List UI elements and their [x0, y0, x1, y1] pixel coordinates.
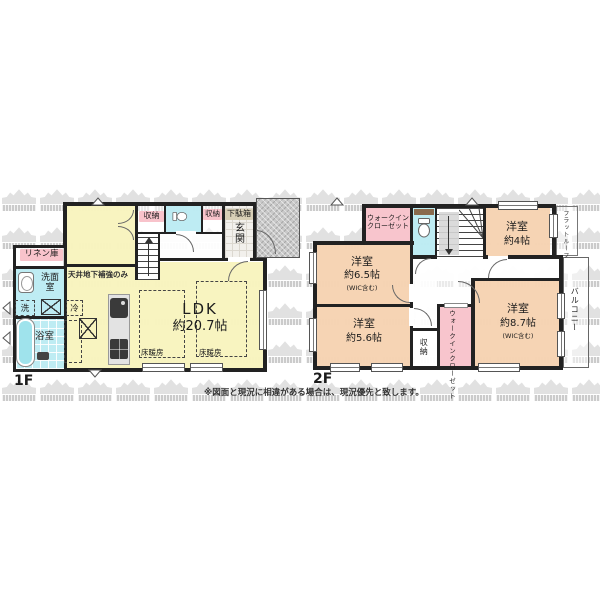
- watermark-logo: [496, 378, 530, 401]
- watermark-logo: [154, 378, 188, 401]
- window: [190, 363, 223, 372]
- wall: [164, 206, 166, 232]
- entrance-label: 玄関: [232, 222, 244, 252]
- washroom-label: 洗面室: [37, 273, 63, 294]
- room4-size: 約4帖: [486, 236, 548, 248]
- balcony-label: バルコニー: [570, 287, 579, 339]
- vent-marker: [2, 331, 11, 345]
- ceiling-note-label: 天井地下補強のみ: [68, 271, 128, 280]
- wall: [413, 328, 437, 331]
- inspection-hatch: [41, 299, 61, 315]
- linen-closet-label: リネン庫: [20, 249, 63, 261]
- room65-name: 洋室: [330, 256, 394, 269]
- watermark-logo: [534, 378, 568, 401]
- floorplan-image: 洗 冷 リネン庫 洗面室 浴室 収納 収納 下駄箱 玄関 天井地下補強のみ LD…: [0, 0, 600, 600]
- wall: [471, 278, 563, 281]
- watermark-logo: [572, 378, 600, 401]
- ldk-name-label: LDK: [168, 301, 232, 318]
- floor1-label: 1F: [14, 373, 33, 389]
- f2-hall: [413, 259, 559, 280]
- bathroom-label: 浴室: [35, 332, 54, 343]
- room87-name: 洋室: [486, 303, 550, 316]
- window: [371, 363, 403, 372]
- room56-size: 約5.6帖: [326, 333, 402, 345]
- sink-icon: [18, 272, 34, 293]
- storage-label-b: 収納: [203, 209, 222, 220]
- watermark-logo: [268, 302, 302, 325]
- toilet-icon: [417, 218, 431, 238]
- window: [478, 363, 520, 372]
- wall: [67, 264, 135, 267]
- watermark-logo: [116, 378, 150, 401]
- storage-label-a: 収納: [139, 211, 164, 222]
- storage2-label: 収納: [419, 338, 428, 362]
- wall: [437, 304, 440, 368]
- window: [330, 363, 360, 372]
- room56-name: 洋室: [332, 318, 396, 331]
- fridge-space: 冷: [66, 300, 83, 316]
- stairs-down-arrow: [448, 216, 449, 250]
- bifold-door: [444, 303, 468, 308]
- f2-stairs-winder: [459, 208, 483, 238]
- flat-roof-label: フラットルーフ: [561, 210, 568, 254]
- room65-size: 約6.5帖: [324, 270, 400, 282]
- washer-label: 洗: [21, 304, 30, 314]
- window: [142, 363, 185, 372]
- bathtub-icon: [17, 319, 34, 366]
- fridge-label: 冷: [70, 304, 79, 314]
- wall: [313, 304, 413, 307]
- room65-note: (WIC含む): [328, 285, 396, 292]
- wall: [16, 266, 64, 269]
- watermark-logo: [268, 340, 302, 363]
- window: [309, 318, 317, 352]
- washer-space: 洗: [15, 300, 35, 316]
- window: [498, 201, 538, 210]
- vent-marker: [2, 301, 11, 315]
- stairs-down-arrowhead: [445, 249, 453, 255]
- watermark-logo: [2, 188, 36, 211]
- wall: [313, 241, 366, 245]
- wall: [483, 255, 488, 259]
- floor-heating-label-1: 床暖房: [141, 349, 164, 358]
- stairs-up-arrow: [148, 240, 149, 276]
- floor-heating-label-2: 床暖房: [199, 349, 222, 358]
- vent-marker: [330, 197, 344, 206]
- kitchen-sink-icon: [110, 298, 128, 318]
- room87-note: (WIC含む): [482, 333, 554, 340]
- floor2-label: 2F: [313, 371, 332, 387]
- vent-marker: [91, 197, 105, 206]
- watermark-logo: [458, 378, 492, 401]
- wic-side-label: ウォークインクローゼット: [448, 310, 455, 364]
- shower-fixture-icon: [37, 352, 49, 360]
- wic-top-line2: クローゼット: [364, 222, 412, 230]
- toilet-shelf: [414, 209, 434, 215]
- wall: [508, 255, 563, 259]
- window: [549, 214, 558, 238]
- kitchen-stove-icon: [110, 339, 128, 359]
- window: [557, 331, 565, 357]
- wic-top-label: ウォークイン クローゼット: [364, 214, 412, 230]
- shoe-cabinet-label: 下駄箱: [225, 209, 253, 220]
- inspection-hatch: [79, 318, 97, 339]
- wall: [366, 241, 414, 245]
- window: [557, 293, 565, 319]
- window: [309, 252, 317, 284]
- watermark-logo: [78, 378, 112, 401]
- wic-top-line1: ウォークイン: [364, 214, 412, 222]
- vent-marker: [465, 197, 479, 206]
- room4-name: 洋室: [486, 221, 548, 234]
- stairs-up-arrowhead: [145, 237, 153, 243]
- window: [259, 290, 267, 350]
- room87-size: 約8.7帖: [478, 318, 558, 330]
- vent-marker: [88, 369, 102, 378]
- watermark-logo: [40, 378, 74, 401]
- toilet-icon: [173, 207, 188, 227]
- disclaimer-text: ※図面と現況に相違がある場合は、現況優先と致します。: [204, 389, 424, 399]
- ldk-size-label: 約20.7帖: [158, 320, 242, 335]
- watermark-logo: [268, 264, 302, 287]
